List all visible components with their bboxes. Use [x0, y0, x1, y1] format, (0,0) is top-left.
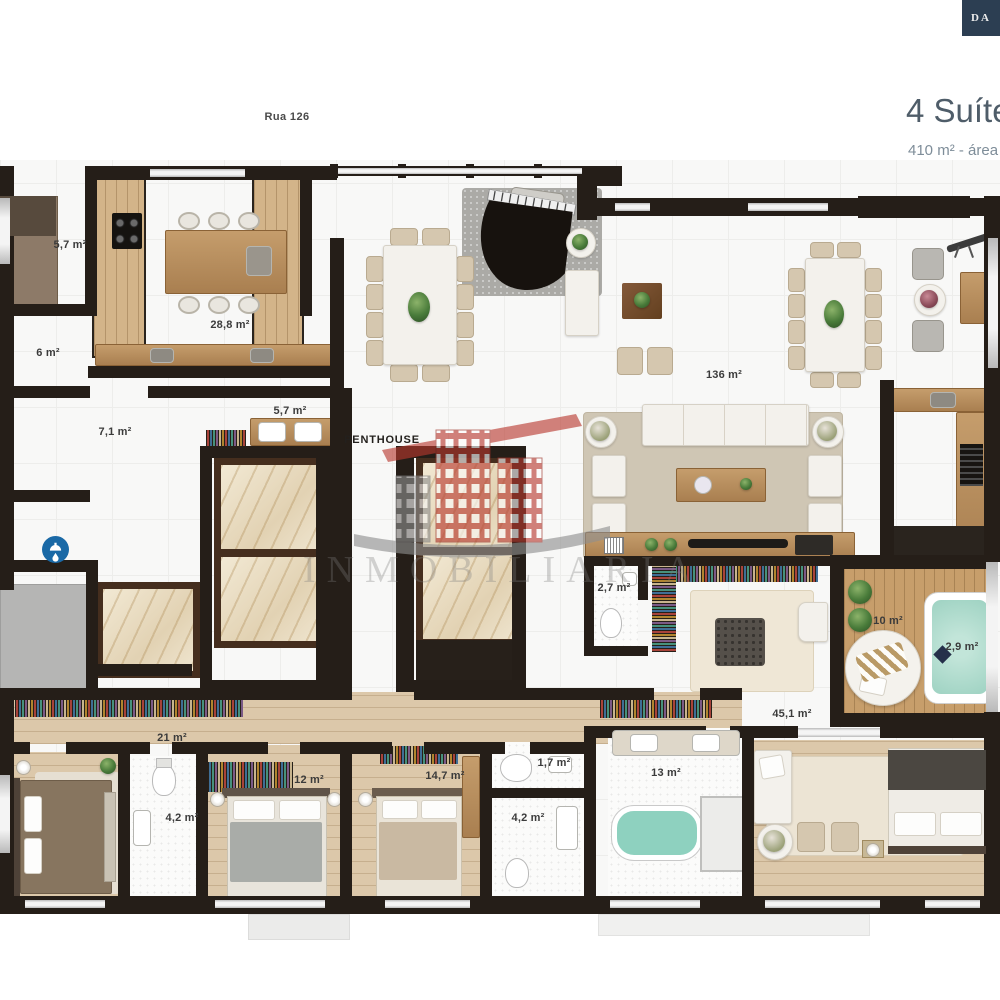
lounge-chair [798, 602, 828, 642]
dining-chair [865, 294, 882, 318]
terrace-rail [986, 562, 998, 712]
duvet [230, 822, 322, 882]
dining-chair [788, 320, 805, 344]
wall [480, 742, 492, 898]
terrace-door [798, 728, 880, 737]
wall [148, 386, 338, 398]
sink [930, 392, 956, 408]
wall [66, 742, 150, 754]
dining-chair [456, 312, 474, 338]
bed-bench [104, 792, 116, 882]
dining-chair [366, 284, 384, 310]
wall [858, 196, 970, 218]
dining-chair [865, 268, 882, 292]
wall [0, 490, 90, 502]
dining-chair [788, 294, 805, 318]
dining-chair [422, 228, 450, 246]
bed-throw [888, 750, 986, 790]
ledge [248, 914, 350, 940]
lamp [210, 792, 225, 807]
bar-stool [238, 296, 260, 314]
wardrobe [462, 756, 480, 838]
room-area-label: 7,1 m² [99, 426, 132, 438]
tv [688, 539, 788, 548]
wall [754, 726, 798, 738]
sink [692, 734, 720, 752]
room-area-label: 5,7 m² [54, 239, 87, 251]
dining-chair [837, 242, 861, 258]
wall [300, 166, 312, 316]
dining-chair [422, 364, 450, 382]
penthouse-label: PENTHOUSE [344, 434, 420, 446]
wall [0, 742, 30, 754]
table-centerpiece [824, 300, 844, 328]
bookshelf [600, 700, 712, 718]
plant [848, 580, 872, 604]
armchair [617, 347, 643, 375]
plant [634, 292, 650, 308]
speaker [795, 535, 833, 555]
plant [817, 421, 837, 441]
window [150, 169, 245, 177]
stairs-area [0, 584, 88, 690]
bar-stool [208, 296, 230, 314]
pillow [894, 812, 936, 836]
floorplan-page: DA 4 Suítes 410 m² - área Rua 126 [0, 0, 1000, 1000]
pillow [24, 796, 42, 832]
brand-badge: DA [962, 0, 1000, 36]
room-area-label: 136 m² [706, 369, 742, 381]
sofa [565, 270, 599, 336]
room-area-label: 6 m² [36, 347, 59, 359]
watermark-text: INMOBILIARIA [288, 548, 718, 592]
toilet [152, 764, 176, 796]
ledge [598, 914, 870, 936]
dining-chair [788, 346, 805, 370]
pillow [279, 800, 321, 820]
kitchen-counter [95, 344, 337, 366]
wall [414, 688, 654, 700]
counter-appliance [250, 348, 274, 363]
cistern [156, 758, 172, 768]
plant [763, 830, 785, 852]
wall [118, 742, 130, 898]
wall [742, 726, 754, 898]
wall [880, 380, 894, 555]
armchair [912, 320, 944, 352]
grill [960, 444, 983, 486]
wall [200, 446, 326, 458]
lamp [866, 843, 880, 857]
dining-chair [456, 284, 474, 310]
plant [740, 478, 752, 490]
armchair [797, 822, 825, 852]
watermark-logo [352, 406, 612, 563]
room-area-label: 14,7 m² [425, 770, 464, 782]
wall [984, 712, 1000, 912]
room-area-label: 45,1 m² [772, 708, 811, 720]
room-area-label: 2,9 m² [946, 641, 979, 653]
room-area-label: 13 m² [651, 767, 681, 779]
sink [630, 734, 658, 752]
pillow [382, 800, 418, 819]
wall [830, 713, 995, 727]
armchair [831, 822, 859, 852]
room-area-label: 28,8 m² [210, 319, 249, 331]
pillow [24, 838, 42, 874]
lamp [16, 760, 31, 775]
armchair [647, 347, 673, 375]
window [0, 198, 10, 264]
wall [584, 646, 648, 656]
wall [0, 386, 90, 398]
sideboard [960, 272, 986, 324]
shower [700, 796, 744, 872]
wall [830, 555, 995, 569]
bar-stool [178, 212, 200, 230]
pillow [940, 812, 982, 836]
shower-badge-icon [42, 536, 69, 563]
room-area-label: 1,7 m² [538, 757, 571, 769]
wall [330, 164, 338, 178]
duvet [379, 822, 457, 880]
room-area-label: 21 m² [157, 732, 187, 744]
counter-appliance [150, 348, 174, 363]
window [215, 900, 325, 908]
room-area-label: 12 m² [294, 774, 324, 786]
flower-bowl [920, 290, 938, 308]
window [25, 900, 105, 908]
cooktop [112, 213, 142, 249]
vanity [556, 806, 578, 850]
elevator-cab [214, 458, 328, 556]
dining-chair [788, 268, 805, 292]
page-subtitle: 410 m² - área [908, 142, 998, 159]
room-area-label: 5,7 m² [274, 405, 307, 417]
wall [200, 446, 212, 692]
window [615, 203, 650, 211]
armchair [912, 248, 944, 280]
wall [700, 688, 742, 700]
dining-chair [865, 320, 882, 344]
wall [85, 176, 97, 310]
room-area-label: 4,2 m² [512, 812, 545, 824]
window [0, 775, 10, 853]
sink [294, 422, 322, 442]
plant [848, 608, 872, 632]
wall [0, 304, 97, 316]
wall [340, 742, 352, 898]
sofa [642, 404, 809, 446]
toilet [500, 754, 532, 782]
window [925, 900, 980, 908]
plant [572, 234, 588, 250]
ottoman [715, 618, 765, 666]
wardrobe [92, 172, 146, 358]
window [338, 168, 582, 174]
table-centerpiece [408, 292, 430, 322]
dining-chair [810, 372, 834, 388]
room-area-label: 4,2 m² [166, 812, 199, 824]
headboard [888, 846, 986, 854]
toilet [505, 858, 529, 888]
lamp [358, 792, 373, 807]
dining-chair [810, 242, 834, 258]
toilet [600, 608, 622, 638]
window [610, 900, 700, 908]
wall [88, 366, 338, 378]
dining-chair [366, 256, 384, 282]
bar-stool [208, 212, 230, 230]
wall [492, 788, 584, 798]
vanity [133, 810, 151, 846]
street-label: Rua 126 [265, 111, 310, 123]
wall [424, 742, 505, 754]
pillow [421, 800, 457, 819]
room-area-label: 2,7 m² [598, 582, 631, 594]
window [988, 238, 998, 368]
window [765, 900, 880, 908]
window [385, 900, 470, 908]
dining-chair [366, 340, 384, 366]
bar-stool [238, 212, 260, 230]
armchair [808, 455, 842, 497]
wall [0, 688, 352, 700]
page-title: 4 Suítes [906, 92, 1000, 130]
decor-bowl [694, 476, 712, 494]
dining-chair [390, 364, 418, 382]
dining-chair [837, 372, 861, 388]
window [748, 203, 828, 211]
dining-chair [865, 346, 882, 370]
wall [830, 555, 844, 727]
gourmet-cabinet [884, 526, 988, 556]
dining-chair [390, 228, 418, 246]
plant [100, 758, 116, 774]
island-sink [246, 246, 272, 276]
dining-chair [456, 340, 474, 366]
coffee-table [676, 468, 766, 502]
wall [584, 726, 596, 898]
room-area-label: 10 m² [873, 615, 903, 627]
pillow [758, 754, 785, 780]
pillow [233, 800, 275, 820]
bathtub [612, 806, 702, 860]
wall [92, 664, 192, 676]
wall [880, 726, 996, 738]
bar-stool [178, 296, 200, 314]
wall [984, 380, 1000, 562]
sink [258, 422, 286, 442]
dining-chair [366, 312, 384, 338]
